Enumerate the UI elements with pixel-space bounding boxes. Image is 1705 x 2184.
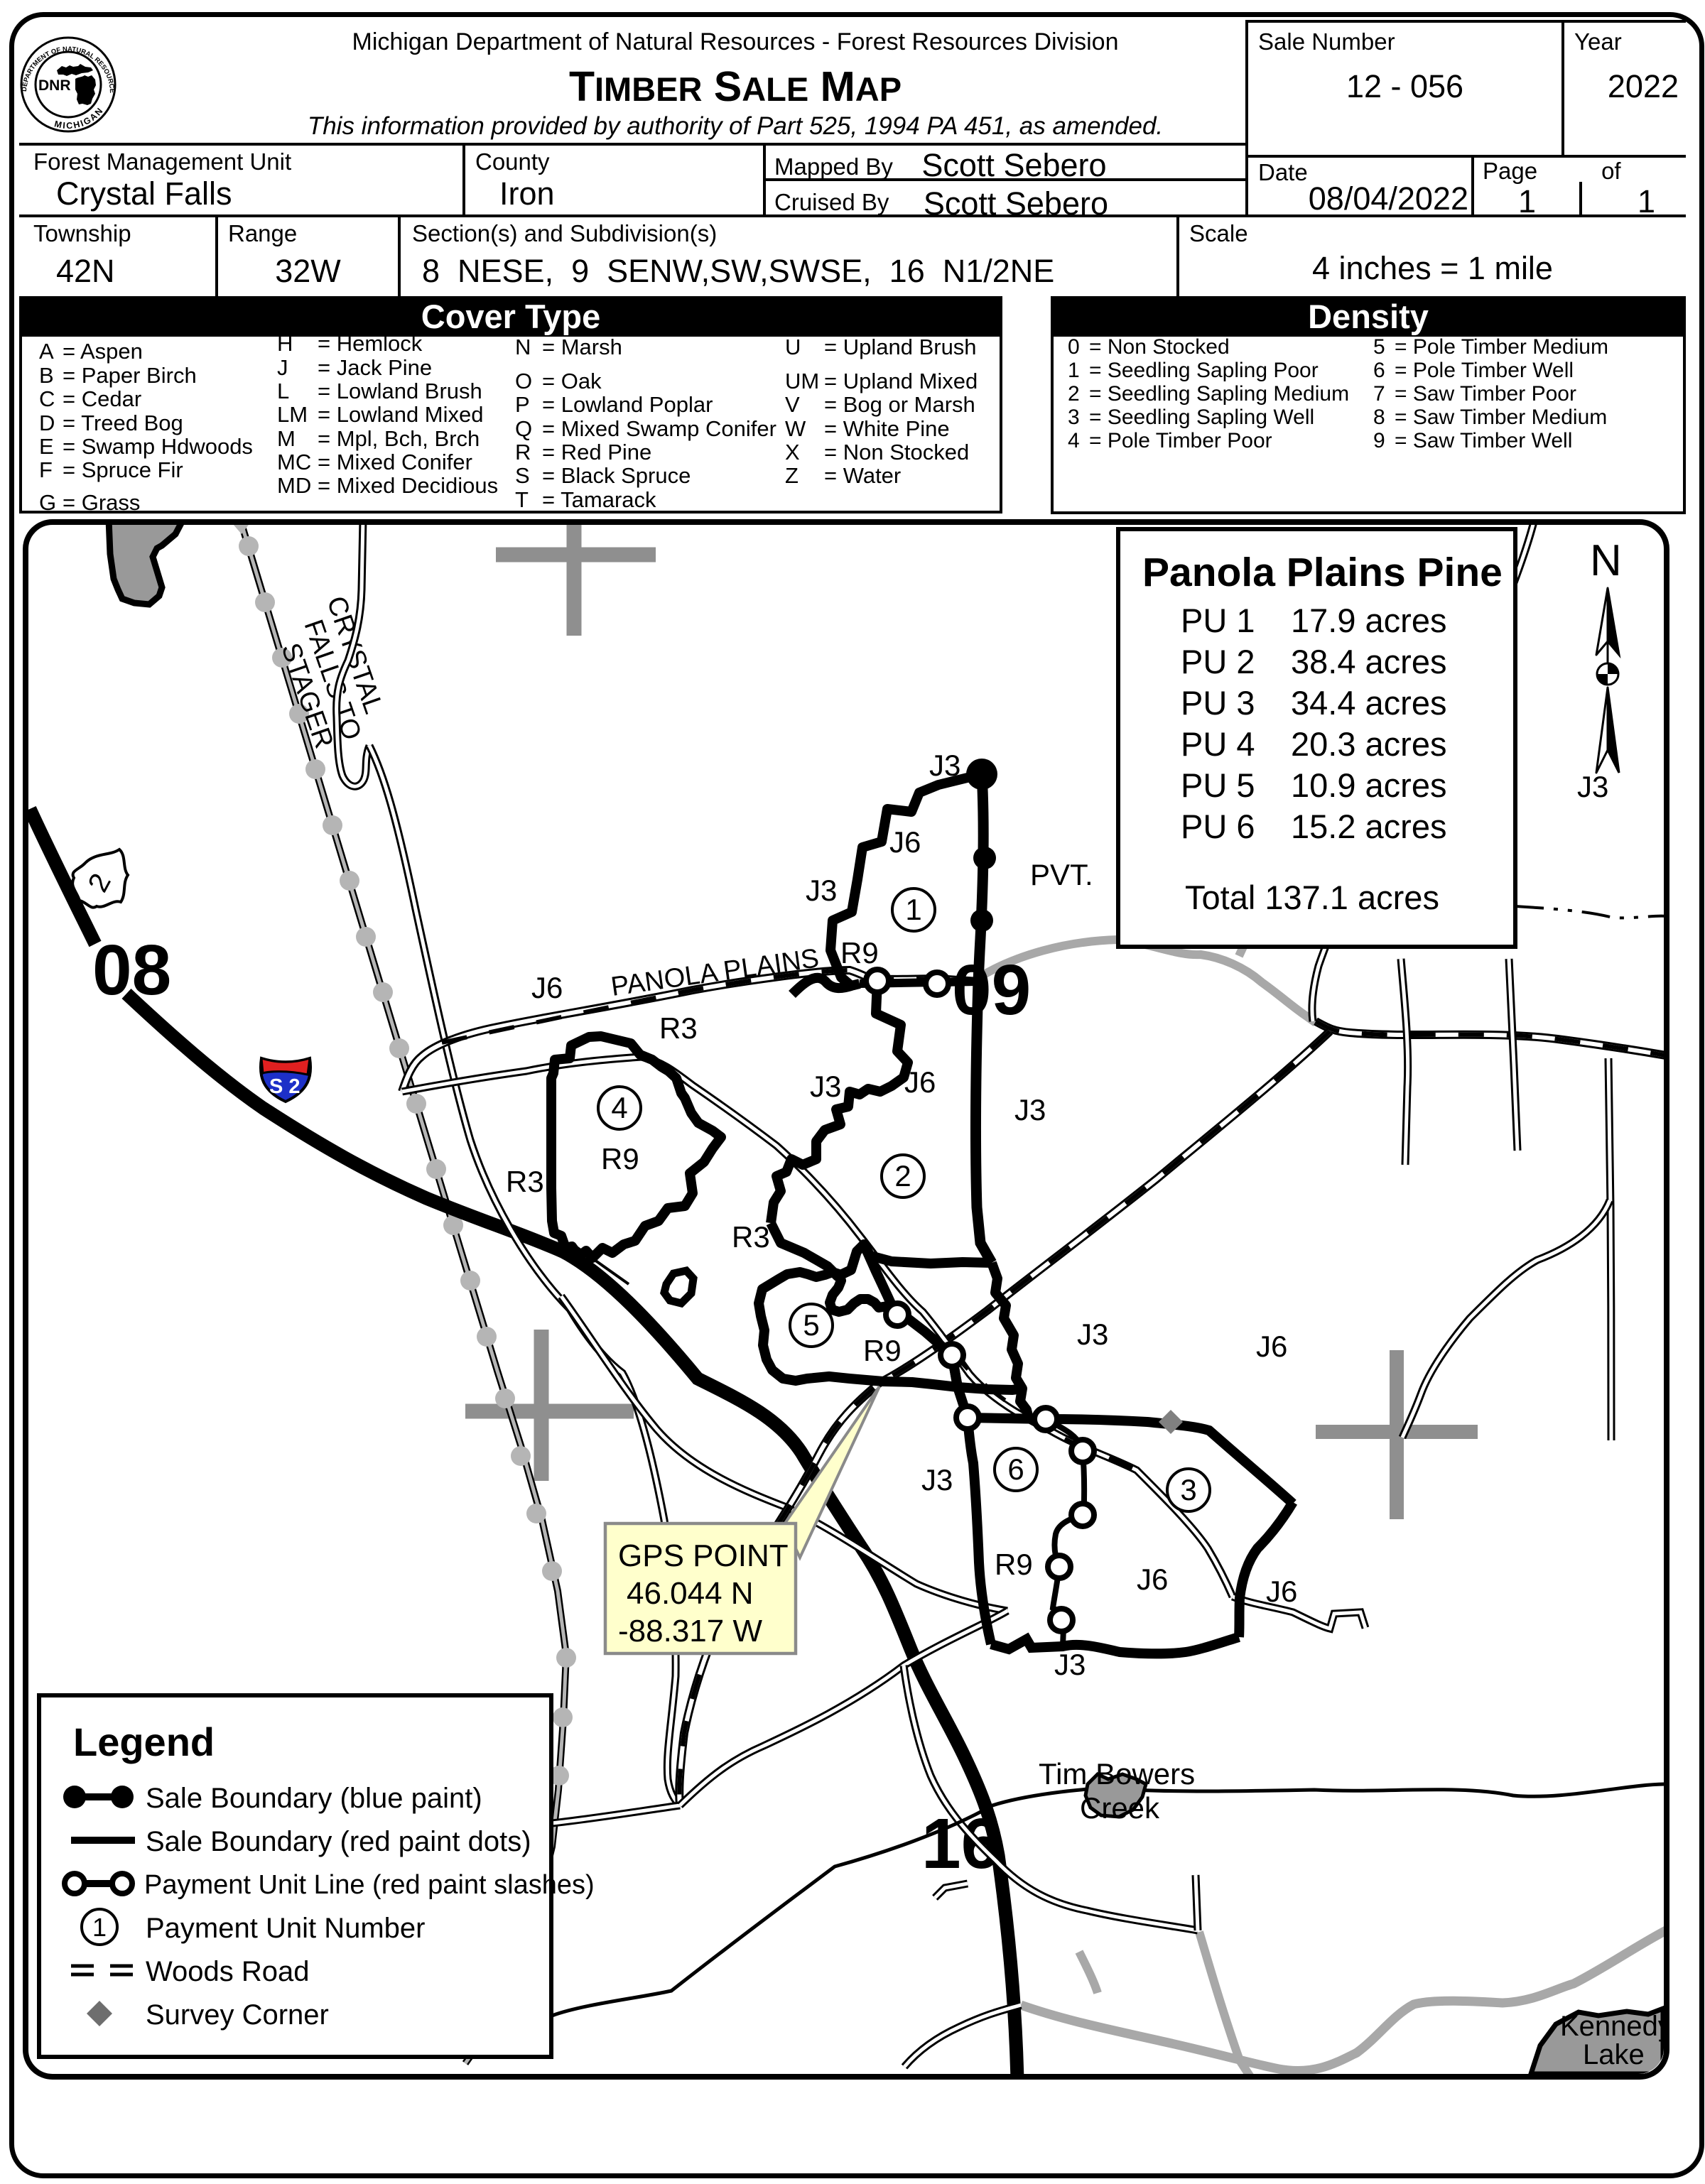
svg-text:N: N: [1590, 536, 1622, 585]
svg-text:Panola Plains Pine: Panola Plains Pine: [1142, 550, 1503, 595]
svg-text:Survey Corner: Survey Corner: [146, 1999, 329, 2031]
svg-text:1: 1: [905, 893, 921, 926]
svg-text:Creek: Creek: [1080, 1791, 1160, 1825]
svg-text:5: 5: [803, 1308, 819, 1342]
svg-text:4: 4: [611, 1091, 627, 1124]
svg-text:15.2 acres: 15.2 acres: [1291, 808, 1446, 845]
svg-text:PU 1: PU 1: [1181, 602, 1255, 639]
svg-text:J6: J6: [1137, 1563, 1168, 1596]
svg-text:J6: J6: [1266, 1575, 1297, 1608]
svg-text:34.4 acres: 34.4 acres: [1291, 684, 1446, 722]
svg-text:08: 08: [92, 930, 171, 1010]
svg-text:PU 5: PU 5: [1181, 766, 1255, 804]
svg-text:PU 3: PU 3: [1181, 684, 1255, 722]
svg-text:J6: J6: [904, 1065, 936, 1099]
svg-text:6: 6: [1007, 1452, 1024, 1486]
svg-text:46.044 N: 46.044 N: [627, 1576, 754, 1611]
svg-text:Tim Bowers: Tim Bowers: [1039, 1757, 1195, 1791]
svg-text:J3: J3: [1077, 1318, 1108, 1351]
svg-text:1: 1: [92, 1913, 107, 1942]
svg-text:-88.317 W: -88.317 W: [618, 1614, 762, 1648]
svg-text:J6: J6: [1256, 1330, 1287, 1363]
svg-text:J3: J3: [806, 874, 837, 907]
svg-text:Sale Boundary (blue paint): Sale Boundary (blue paint): [146, 1783, 482, 1814]
svg-text:Payment Unit Number: Payment Unit Number: [146, 1913, 425, 1944]
svg-text:R9: R9: [840, 936, 879, 969]
svg-text:J3: J3: [1577, 770, 1608, 803]
svg-text:2: 2: [894, 1159, 911, 1192]
svg-text:R3: R3: [506, 1165, 544, 1198]
svg-text:R3: R3: [732, 1220, 770, 1254]
svg-text:PU 2: PU 2: [1181, 643, 1255, 680]
svg-text:J3: J3: [1014, 1093, 1046, 1126]
svg-text:PU 4: PU 4: [1181, 725, 1255, 763]
svg-text:16: 16: [921, 1804, 1000, 1884]
svg-text:Woods Road: Woods Road: [146, 1956, 310, 1987]
svg-text:PVT.: PVT.: [1030, 858, 1093, 891]
svg-text:R9: R9: [863, 1334, 902, 1367]
svg-text:Payment Unit Line (red paint s: Payment Unit Line (red paint slashes): [144, 1870, 595, 1900]
svg-text:17.9 acres: 17.9 acres: [1291, 602, 1446, 639]
svg-text:S 2: S 2: [269, 1075, 301, 1098]
svg-text:PANOLA PLAINS: PANOLA PLAINS: [609, 943, 821, 1002]
svg-text:09: 09: [952, 950, 1031, 1030]
svg-text:3: 3: [1180, 1473, 1196, 1506]
svg-text:PU 6: PU 6: [1181, 808, 1255, 845]
svg-text:Lake: Lake: [1583, 2039, 1645, 2070]
svg-text:J3: J3: [921, 1463, 953, 1496]
svg-text:Legend: Legend: [73, 1720, 215, 1764]
svg-text:J3: J3: [1054, 1648, 1086, 1681]
svg-text:J6: J6: [531, 971, 563, 1004]
svg-text:Kennedy: Kennedy: [1560, 2011, 1672, 2042]
svg-text:J3: J3: [929, 749, 960, 782]
svg-text:GPS POINT: GPS POINT: [618, 1538, 789, 1573]
svg-text:J3: J3: [810, 1070, 841, 1103]
svg-text:R3: R3: [659, 1011, 698, 1045]
svg-text:38.4 acres: 38.4 acres: [1291, 643, 1446, 680]
svg-text:Sale Boundary (red paint dots): Sale Boundary (red paint dots): [146, 1826, 531, 1857]
svg-text:Total 137.1 acres: Total 137.1 acres: [1185, 879, 1439, 916]
svg-text:20.3 acres: 20.3 acres: [1291, 725, 1446, 763]
svg-text:10.9 acres: 10.9 acres: [1291, 766, 1446, 804]
svg-text:J6: J6: [889, 825, 921, 859]
svg-text:R9: R9: [601, 1142, 639, 1175]
svg-text:R9: R9: [995, 1548, 1033, 1581]
